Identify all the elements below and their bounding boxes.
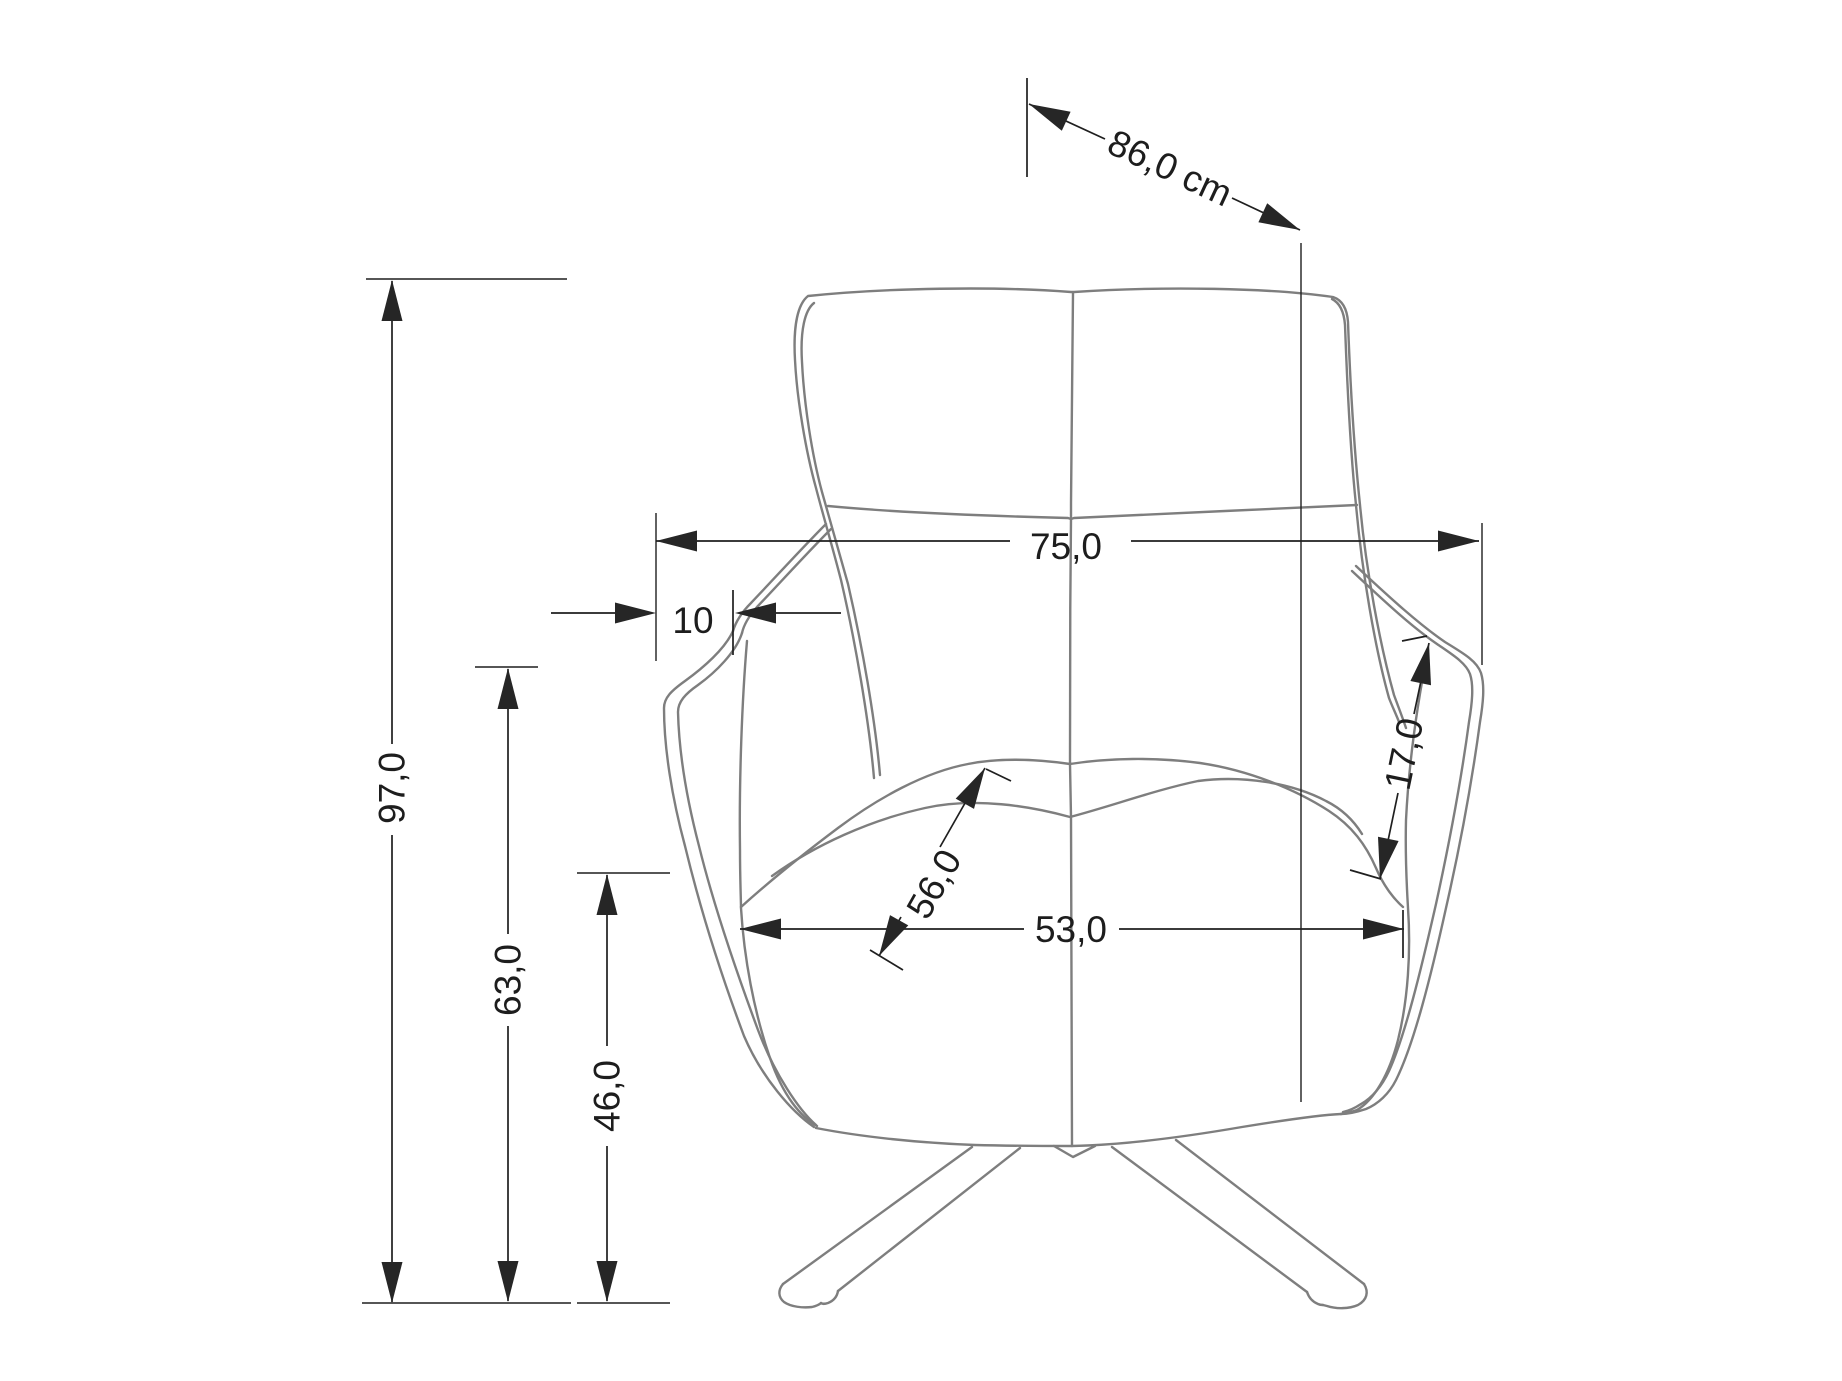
svg-text:53,0: 53,0 (1035, 909, 1107, 950)
svg-text:97,0: 97,0 (372, 752, 413, 824)
svg-text:63,0: 63,0 (488, 944, 529, 1016)
svg-text:10: 10 (672, 600, 713, 641)
svg-text:75,0: 75,0 (1030, 526, 1102, 567)
svg-text:46,0: 46,0 (587, 1060, 628, 1132)
